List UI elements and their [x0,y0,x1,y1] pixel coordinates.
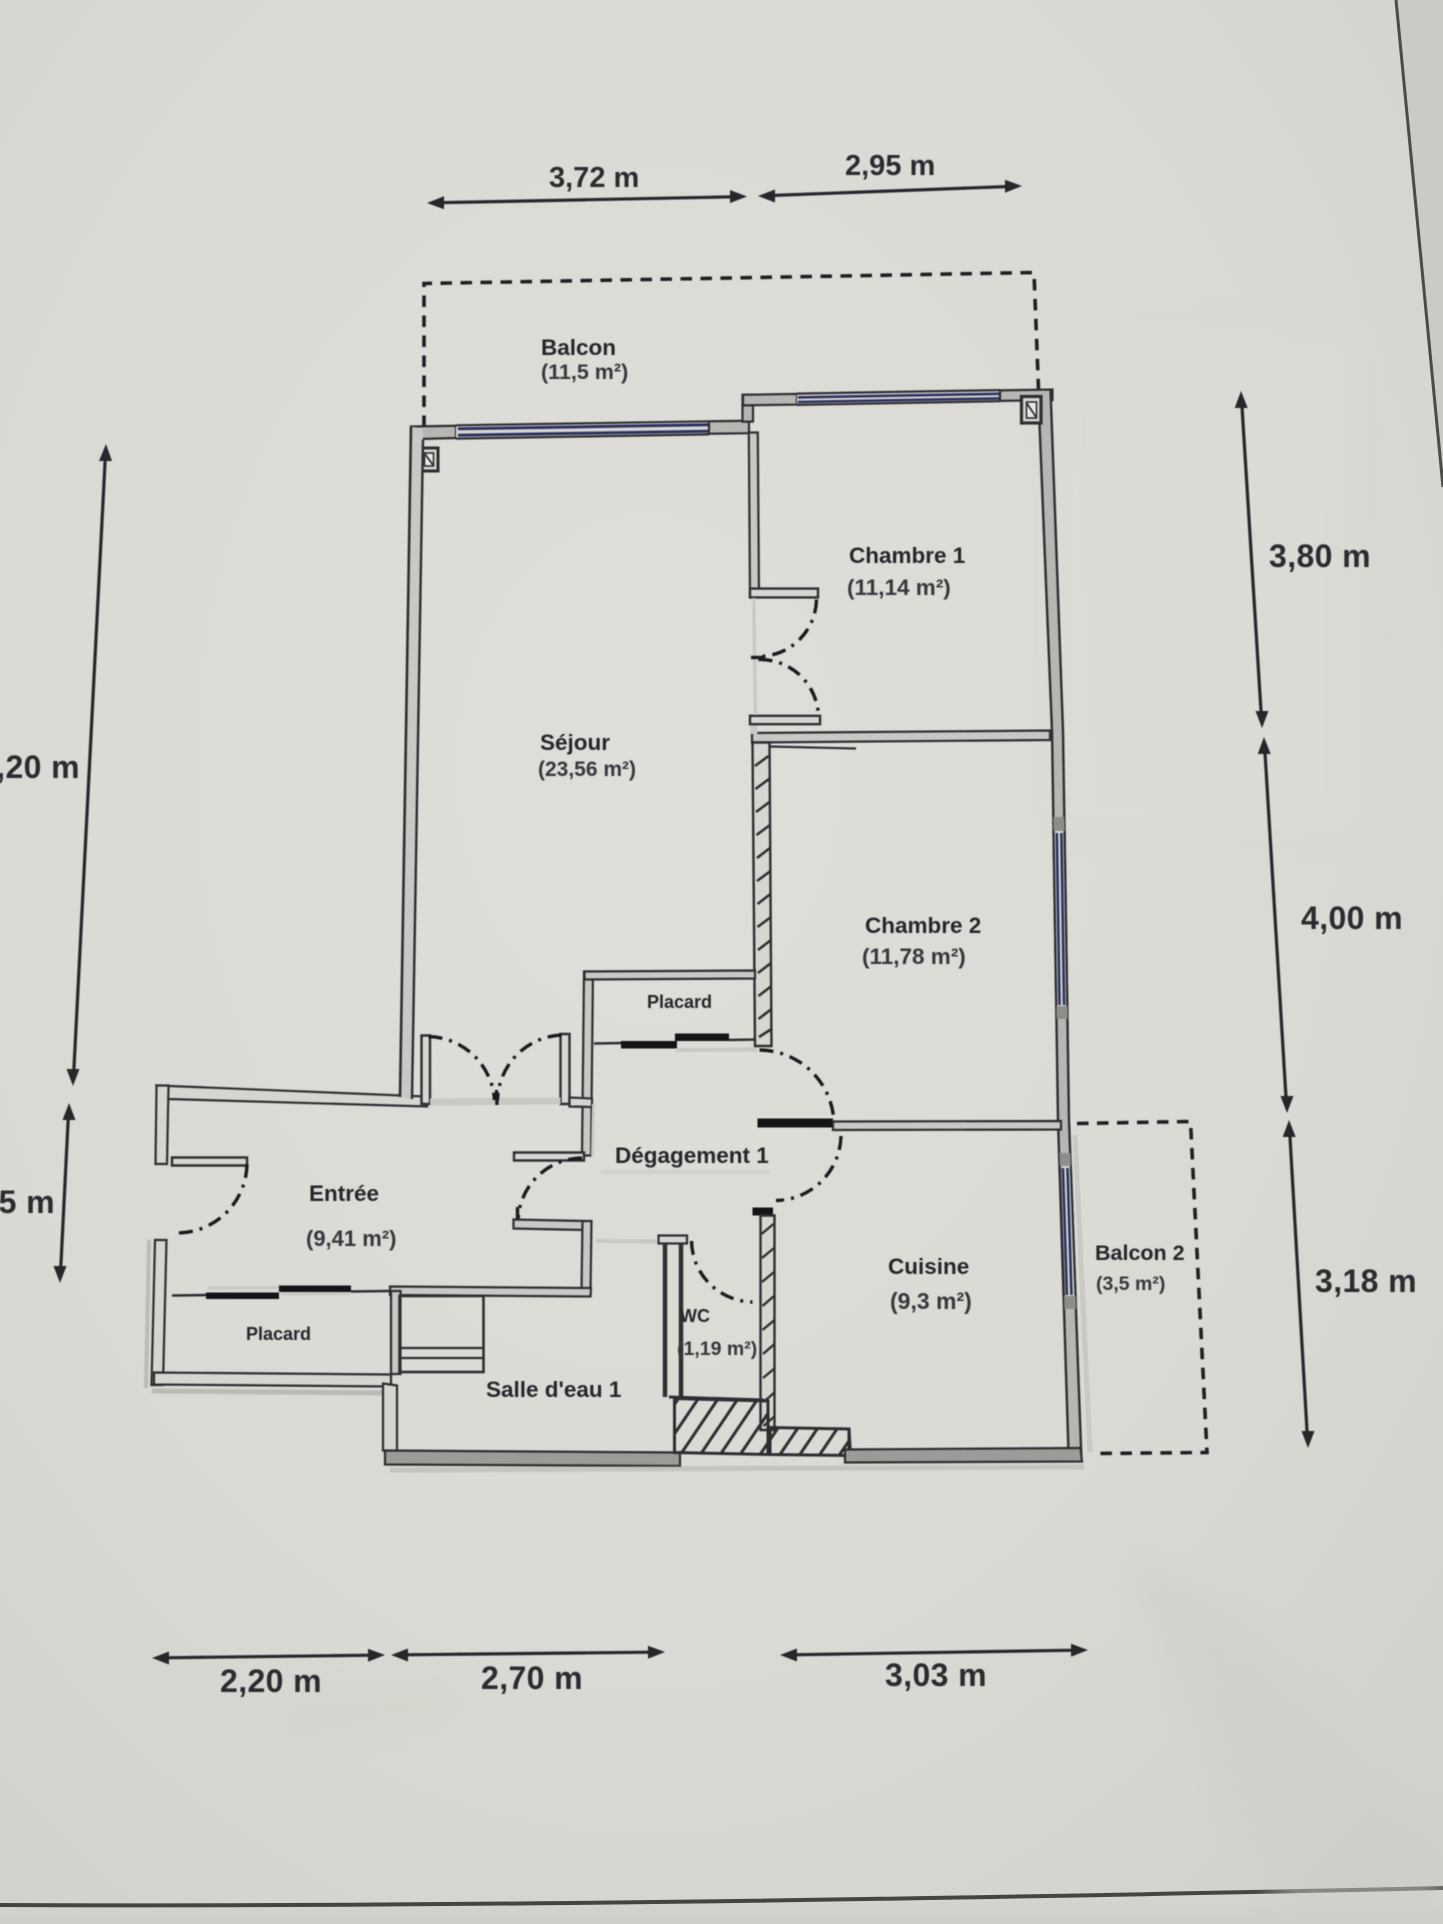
svg-text:WC: WC [680,1306,710,1326]
svg-text:3,80 m: 3,80 m [1269,538,1371,574]
svg-text:Dégagement 1: Dégagement 1 [615,1143,769,1168]
svg-text:1,95 m: 1,95 m [0,1184,55,1220]
svg-text:Entrée: Entrée [309,1181,379,1206]
svg-text:Balcon: Balcon [541,335,616,360]
svg-text:Séjour: Séjour [540,730,610,755]
svg-text:2,95 m: 2,95 m [845,150,935,182]
svg-text:Placard: Placard [647,992,712,1012]
svg-text:Salle d'eau 1: Salle d'eau 1 [486,1377,621,1402]
svg-text:Chambre 1: Chambre 1 [849,543,965,568]
svg-text:Balcon 2: Balcon 2 [1095,1241,1185,1265]
svg-text:Cuisine: Cuisine [888,1254,969,1279]
svg-text:Placard: Placard [246,1324,311,1344]
svg-text:(11,5 m²): (11,5 m²) [541,360,628,384]
svg-text:3,18 m: 3,18 m [1315,1263,1417,1299]
svg-text:(1,19 m²): (1,19 m²) [677,1338,757,1360]
svg-text:(11,78 m²): (11,78 m²) [862,944,966,969]
svg-text:(23,56 m²): (23,56 m²) [538,758,636,781]
svg-text:7,20 m: 7,20 m [0,749,80,785]
svg-text:3,03 m: 3,03 m [885,1657,987,1693]
svg-text:4,00 m: 4,00 m [1301,900,1403,936]
svg-text:2,70 m: 2,70 m [481,1660,583,1696]
svg-text:(11,14 m²): (11,14 m²) [847,575,951,600]
svg-text:Chambre 2: Chambre 2 [865,913,981,938]
svg-text:(3,5 m²): (3,5 m²) [1096,1273,1165,1295]
svg-text:3,72 m: 3,72 m [549,162,639,194]
svg-text:(9,41 m²): (9,41 m²) [306,1226,396,1251]
svg-text:2,20 m: 2,20 m [220,1663,322,1699]
svg-text:(9,3 m²): (9,3 m²) [890,1288,972,1314]
